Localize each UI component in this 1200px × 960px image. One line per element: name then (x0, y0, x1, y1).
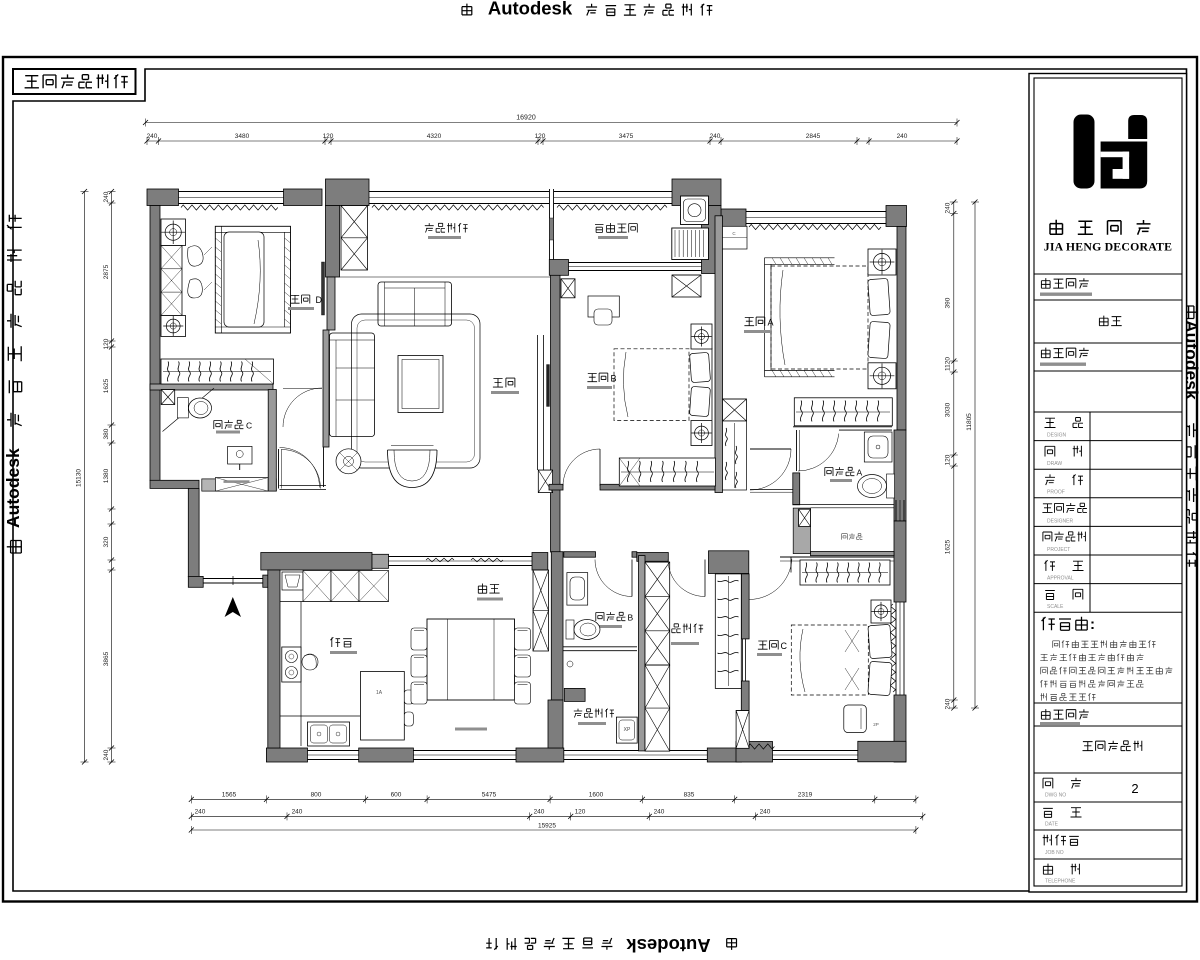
svg-text:120: 120 (945, 454, 952, 465)
svg-text:B: B (628, 613, 634, 623)
svg-text:120: 120 (575, 809, 586, 816)
svg-text:C: C (246, 421, 252, 431)
svg-text:1625: 1625 (945, 539, 952, 554)
svg-text:1565: 1565 (222, 792, 237, 799)
svg-text:D: D (316, 295, 323, 305)
svg-text:DATE: DATE (1045, 822, 1059, 828)
svg-text:DWG NO: DWG NO (1045, 793, 1066, 799)
svg-text:2319: 2319 (798, 792, 813, 799)
svg-text:240: 240 (147, 133, 158, 140)
svg-text:240: 240 (654, 809, 665, 816)
svg-text:DESIGN: DESIGN (1047, 433, 1067, 439)
svg-text:SCALE: SCALE (1047, 604, 1064, 610)
svg-text:2: 2 (1131, 781, 1138, 796)
svg-text:PROJECT: PROJECT (1047, 547, 1070, 553)
svg-text:16920: 16920 (516, 115, 536, 122)
svg-text:600: 600 (391, 792, 402, 799)
svg-text:1625: 1625 (103, 378, 110, 393)
svg-text:240: 240 (760, 809, 771, 816)
svg-text:5475: 5475 (482, 792, 497, 799)
svg-text:1600: 1600 (589, 792, 604, 799)
svg-text:800: 800 (311, 792, 322, 799)
svg-text:120: 120 (535, 133, 546, 140)
svg-text:1120: 1120 (945, 357, 952, 371)
svg-text:3480: 3480 (235, 133, 250, 140)
svg-text:240: 240 (710, 133, 721, 140)
svg-text:C: C (781, 641, 788, 651)
svg-text:TELEPHONE: TELEPHONE (1045, 879, 1076, 885)
svg-text:240: 240 (534, 809, 545, 816)
svg-text:380: 380 (103, 428, 110, 439)
svg-text:240: 240 (195, 809, 206, 816)
svg-text:240: 240 (292, 809, 303, 816)
svg-text:835: 835 (684, 792, 695, 799)
svg-text:B: B (611, 374, 617, 384)
svg-text:3865: 3865 (103, 651, 110, 666)
svg-text:240: 240 (103, 191, 110, 202)
svg-text:3475: 3475 (619, 133, 634, 140)
svg-text:Autodesk: Autodesk (488, 0, 573, 19)
svg-text:240: 240 (945, 698, 952, 709)
svg-text:DRAW: DRAW (1047, 461, 1062, 467)
svg-text:2875: 2875 (103, 264, 110, 279)
svg-text:1380: 1380 (103, 468, 110, 483)
svg-text:240: 240 (945, 202, 952, 213)
svg-text:JOB NO: JOB NO (1045, 850, 1064, 856)
svg-text:APPROVAL: APPROVAL (1047, 576, 1074, 582)
svg-text:120: 120 (103, 338, 110, 349)
svg-text:11805: 11805 (966, 413, 973, 431)
svg-text:DESIGNER: DESIGNER (1047, 518, 1074, 524)
svg-text:A: A (768, 318, 774, 328)
svg-text::: : (1090, 616, 1095, 633)
svg-text:XP: XP (624, 727, 631, 733)
svg-text:240: 240 (103, 749, 110, 760)
svg-text:320: 320 (103, 536, 110, 547)
svg-text:JIA HENG DECORATE: JIA HENG DECORATE (1044, 240, 1172, 254)
svg-text:240: 240 (897, 133, 908, 140)
svg-text:2P: 2P (873, 722, 879, 727)
svg-text:A: A (857, 468, 863, 478)
svg-text:390: 390 (945, 297, 952, 308)
svg-text:PROOF: PROOF (1047, 490, 1065, 496)
svg-text:4320: 4320 (427, 133, 442, 140)
svg-text:15925: 15925 (538, 823, 556, 830)
svg-text:3030: 3030 (945, 402, 952, 417)
svg-text:120: 120 (323, 133, 334, 140)
svg-text:Autodesk: Autodesk (626, 935, 711, 956)
svg-text:2845: 2845 (806, 133, 821, 140)
svg-text:1A: 1A (376, 690, 383, 696)
svg-text:15130: 15130 (76, 469, 83, 487)
